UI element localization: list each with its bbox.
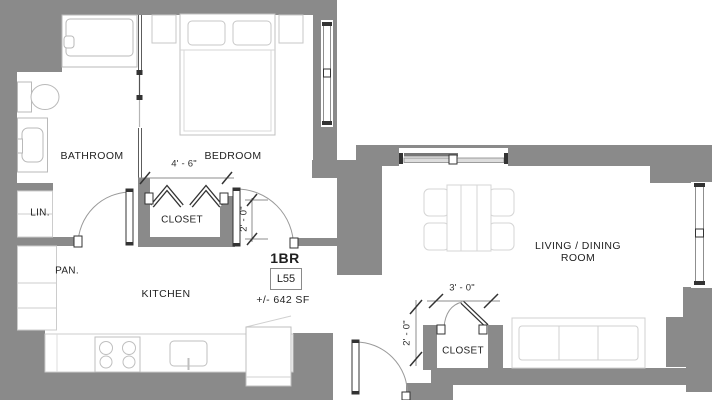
interior-wall-line	[139, 15, 142, 178]
dining-chair	[424, 189, 514, 250]
vanity-sink	[18, 118, 48, 172]
wall-segment	[293, 333, 333, 400]
nightstand	[152, 15, 303, 43]
door-swing-arc	[78, 189, 462, 394]
pantry-shelves	[18, 246, 57, 330]
dim-entry-closet-width: 3' - 0"	[449, 283, 475, 294]
toilet	[18, 82, 60, 112]
kitchen-counter	[45, 334, 293, 372]
bathtub	[62, 15, 137, 67]
living-dining-line2: ROOM	[535, 252, 621, 264]
dim-entry-closet-depth: 2' - 0"	[402, 320, 413, 346]
bifold-door	[152, 188, 221, 206]
sofa	[512, 318, 645, 368]
wall-segment	[17, 183, 53, 191]
unit-id: L55	[277, 273, 295, 285]
stove	[95, 337, 140, 372]
dining-table	[447, 185, 491, 251]
floor-plan: BATHROOM BEDROOM CLOSET LIN. PAN. KITCHE…	[0, 0, 712, 400]
unit-area: +/- 642 SF	[256, 294, 309, 306]
room-label-entry-closet: CLOSET	[442, 346, 484, 357]
bed	[180, 14, 275, 135]
wall-segment	[423, 325, 437, 370]
unit-id-box: L55	[270, 268, 302, 290]
pocket-door	[135, 70, 144, 128]
wall-segment	[337, 160, 382, 275]
room-label-pantry: PAN.	[55, 266, 79, 277]
wall-segment	[293, 238, 337, 246]
wall-segment	[138, 237, 235, 247]
kitchen-sink	[170, 341, 207, 370]
dim-bedroom-door-width: 2' - 0"	[239, 206, 250, 232]
living-dining-line1: LIVING / DINING	[535, 240, 621, 252]
wall-segment	[356, 145, 668, 166]
closet-door-panel	[462, 302, 487, 326]
wall-segment	[0, 330, 45, 400]
dim-bedroom-closet-width: 4' - 6"	[171, 159, 197, 170]
room-label-linen: LIN.	[30, 208, 50, 219]
wall-segment	[0, 237, 76, 246]
room-label-bedroom: BEDROOM	[204, 150, 261, 162]
room-label-bathroom: BATHROOM	[60, 150, 123, 162]
room-label-living-dining: LIVING / DINING ROOM	[535, 240, 621, 264]
unit-type-label: 1BR	[270, 250, 300, 266]
wall-segment	[406, 383, 453, 400]
wall-segment	[488, 325, 503, 370]
room-label-kitchen: KITCHEN	[142, 288, 191, 300]
wall-segment	[431, 368, 693, 385]
room-label-bedroom-closet: CLOSET	[161, 215, 203, 226]
wall-segment	[0, 0, 337, 15]
wall-segment	[313, 0, 337, 178]
